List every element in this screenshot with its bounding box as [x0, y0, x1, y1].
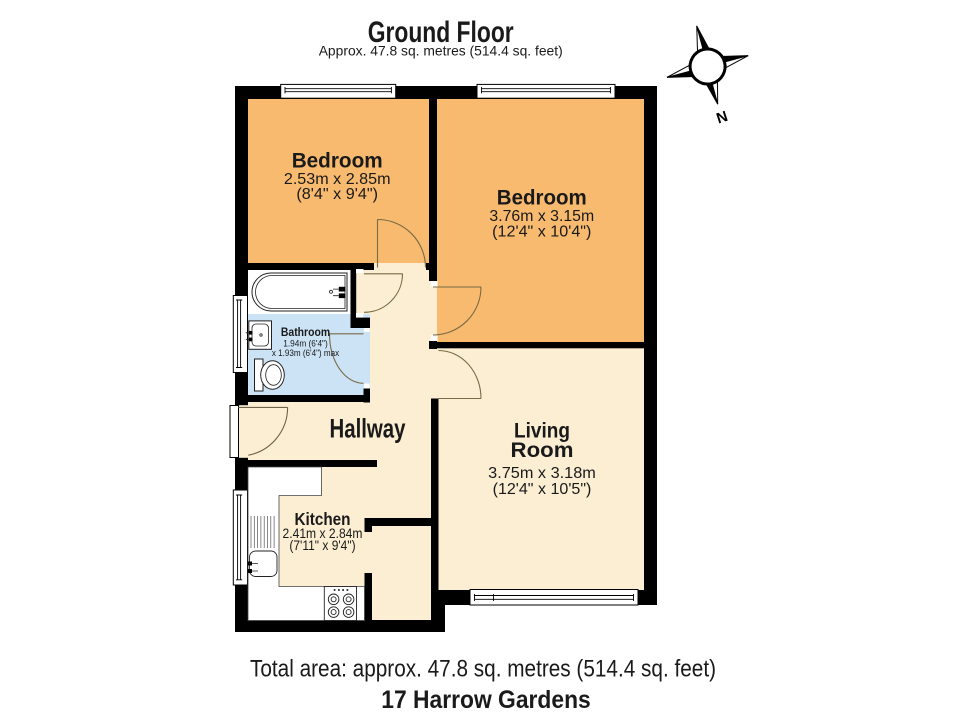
svg-text:1.94m (6'4"): 1.94m (6'4")	[283, 338, 328, 348]
svg-text:Total area: approx. 47.8 sq. m: Total area: approx. 47.8 sq. metres (514…	[250, 656, 716, 683]
svg-text:Approx. 47.8 sq. metres (514.4: Approx. 47.8 sq. metres (514.4 sq. feet)	[319, 43, 563, 59]
svg-text:(12'4" x 10'5"): (12'4" x 10'5")	[493, 481, 592, 498]
svg-text:Room: Room	[511, 439, 574, 462]
svg-text:3.75m x 3.18m: 3.75m x 3.18m	[488, 465, 596, 482]
svg-text:x 1.93m (6'4") max: x 1.93m (6'4") max	[272, 348, 340, 358]
svg-text:Hallway: Hallway	[330, 414, 406, 444]
svg-text:17 Harrow Gardens: 17 Harrow Gardens	[381, 686, 591, 712]
svg-text:(7'11" x 9'4"): (7'11" x 9'4")	[289, 538, 355, 553]
svg-text:(12'4" x 10'4"): (12'4" x 10'4")	[492, 224, 591, 241]
svg-text:Bedroom: Bedroom	[292, 150, 383, 173]
svg-text:Bedroom: Bedroom	[497, 187, 587, 210]
svg-text:Bathroom: Bathroom	[281, 326, 330, 339]
svg-text:(8'4" x 9'4"): (8'4" x 9'4")	[296, 186, 378, 203]
